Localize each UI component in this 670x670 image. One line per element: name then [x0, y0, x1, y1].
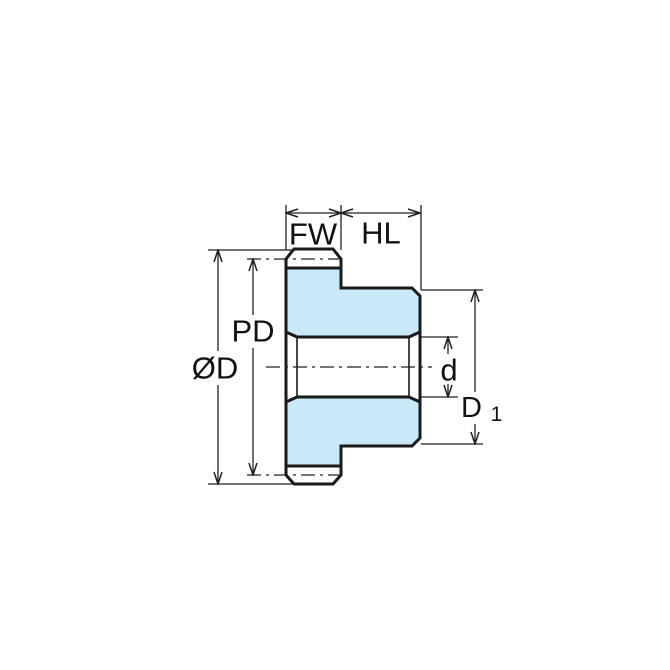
gear-body-lower	[286, 397, 420, 466]
gear-body-upper	[286, 268, 420, 337]
label-pitch-diameter: PD	[231, 314, 274, 349]
label-hub-diameter: D 1	[461, 391, 502, 426]
label-face-width: FW	[289, 217, 338, 252]
diagram-canvas: FW HL PD ØD d D 1	[0, 0, 670, 670]
label-hub-diameter-main: D	[461, 392, 482, 424]
label-outside-diameter: ØD	[192, 351, 239, 386]
label-hub-diameter-subscript: 1	[491, 403, 503, 426]
label-bore-diameter: d	[440, 353, 457, 388]
gear-dimension-diagram: FW HL PD ØD d D 1	[0, 0, 670, 670]
label-hub-length: HL	[361, 216, 401, 251]
